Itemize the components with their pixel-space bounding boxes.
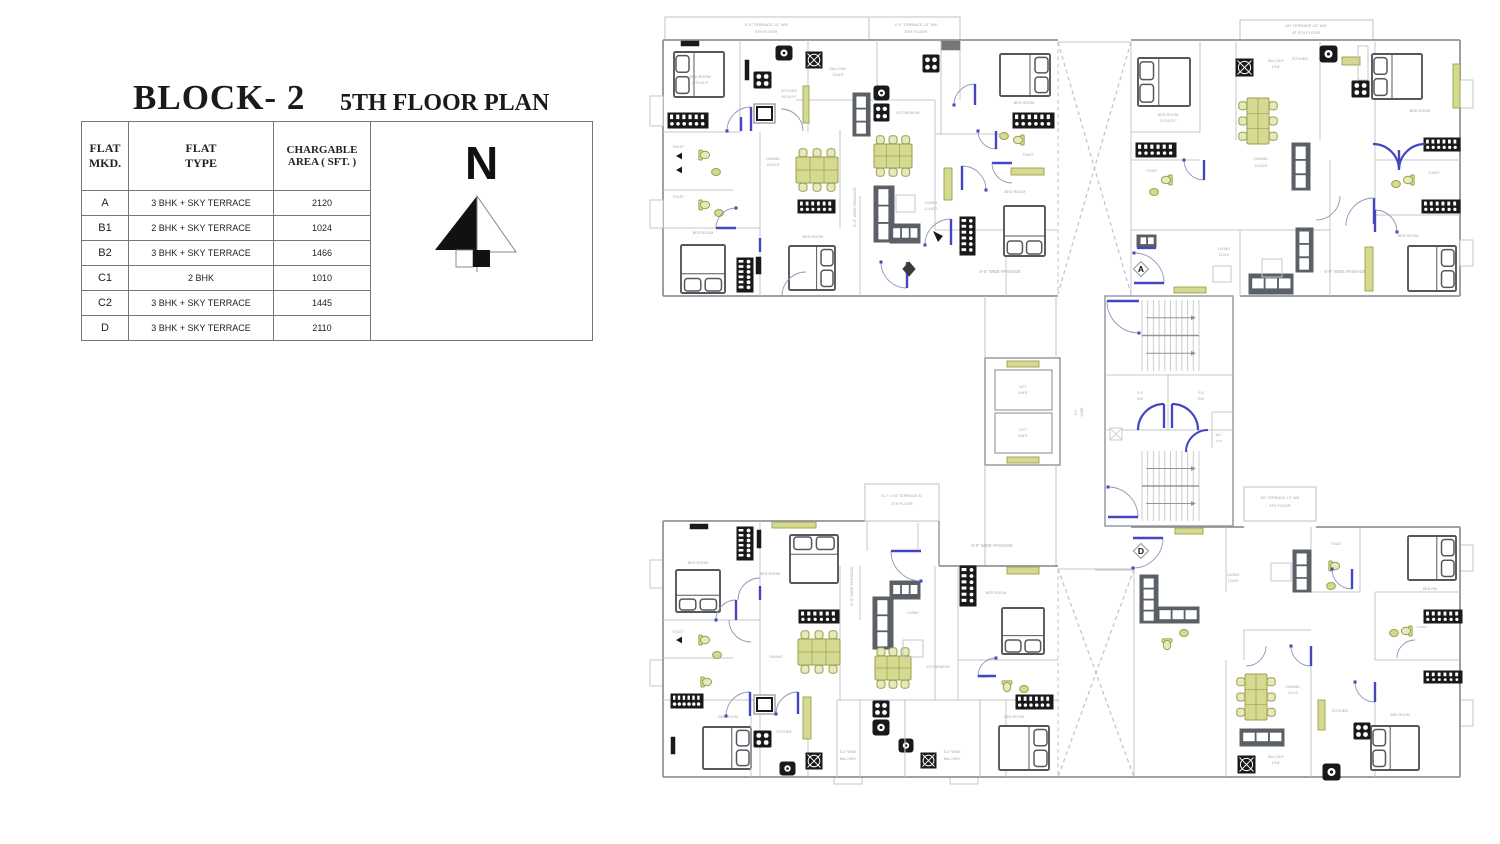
svg-text:KITCHEN: KITCHEN (1332, 709, 1348, 713)
svg-text:S.S: S.S (1137, 391, 1143, 395)
svg-text:DINING: DINING (766, 157, 779, 161)
svg-text:LIVING: LIVING (925, 201, 937, 205)
svg-text:6'x6'6": 6'x6'6" (1018, 434, 1027, 438)
svg-text:12'x19': 12'x19' (1219, 253, 1230, 257)
svg-text:MY TERRACE 13'' WD: MY TERRACE 13'' WD (1261, 496, 1300, 500)
svg-text:TOILET: TOILET (1022, 153, 1033, 157)
svg-text:BED ROOM: BED ROOM (688, 561, 709, 565)
svg-text:TOILET: TOILET (1330, 542, 1341, 546)
svg-text:TOILET: TOILET (672, 145, 684, 149)
svg-text:10'x12'6": 10'x12'6" (766, 163, 780, 167)
svg-text:13'x4': 13'x4' (1272, 761, 1281, 765)
svg-text:5TH FLOOR: 5TH FLOOR (891, 502, 913, 506)
svg-text:5'-0" WIDE PASSAGE: 5'-0" WIDE PASSAGE (971, 543, 1013, 548)
svg-text:BALCONY: BALCONY (944, 757, 961, 761)
svg-text:BALCONY: BALCONY (1268, 755, 1285, 759)
svg-text:LIVING: LIVING (1218, 247, 1230, 251)
svg-text:KITCHEN/DIN: KITCHEN/DIN (927, 665, 950, 669)
svg-text:4'x5': 4'x5' (1216, 439, 1222, 443)
svg-text:LIFT: LIFT (1019, 428, 1027, 432)
svg-text:5TH FLOOR: 5TH FLOOR (905, 29, 928, 34)
svg-text:DINING: DINING (769, 655, 782, 659)
svg-text:TOILET: TOILET (672, 630, 683, 634)
svg-text:5TH FLOOR: 5TH FLOOR (1269, 504, 1291, 508)
svg-text:BED ROOM: BED ROOM (1158, 113, 1179, 117)
svg-text:BED ROOM: BED ROOM (1014, 101, 1035, 105)
svg-text:BALCONY: BALCONY (840, 757, 857, 761)
svg-text:LIFT: LIFT (1019, 385, 1027, 389)
svg-text:W.C.: W.C. (1215, 433, 1222, 437)
svg-text:KITCHEN: KITCHEN (777, 730, 792, 734)
svg-text:5'x8': 5'x8' (1137, 397, 1144, 401)
svg-text:BALCONY: BALCONY (1268, 59, 1285, 63)
svg-text:5'-0" WIDE PASSAGE: 5'-0" WIDE PASSAGE (1324, 269, 1366, 274)
svg-text:WIDE: WIDE (1080, 407, 1084, 417)
svg-text:BED ROOM: BED ROOM (1005, 190, 1026, 194)
svg-text:4'-0" TERRACE 13'' WD: 4'-0" TERRACE 13'' WD (745, 22, 788, 27)
svg-text:10'0"x11'6": 10'0"x11'6" (691, 81, 709, 85)
svg-text:BED ROOM: BED ROOM (693, 231, 714, 235)
svg-text:TOILET: TOILET (1146, 169, 1157, 173)
svg-text:BED ROOM: BED ROOM (760, 572, 781, 576)
svg-text:5'-0" WIDE PASSAGE: 5'-0" WIDE PASSAGE (979, 269, 1021, 274)
svg-text:BED ROOM: BED ROOM (1398, 234, 1419, 238)
svg-text:8'0"x10'0": 8'0"x10'0" (782, 95, 798, 99)
svg-text:5'-0" WIDE PASSAGE: 5'-0" WIDE PASSAGE (849, 566, 854, 606)
svg-text:5'-0" WIDE PASSAGE: 5'-0" WIDE PASSAGE (852, 187, 857, 227)
svg-text:S.S: S.S (1198, 391, 1204, 395)
svg-text:BED ROOM: BED ROOM (689, 74, 711, 79)
svg-text:5'-0" WIDE: 5'-0" WIDE (840, 750, 857, 754)
svg-text:BED ROOM: BED ROOM (803, 235, 824, 239)
svg-text:TOILET: TOILET (1417, 625, 1428, 629)
svg-text:LIVING: LIVING (1227, 573, 1239, 577)
svg-text:TOILET: TOILET (672, 195, 684, 199)
svg-text:5'x8': 5'x8' (1198, 397, 1205, 401)
svg-text:11'x13'6": 11'x13'6" (1254, 164, 1268, 168)
svg-text:DINING: DINING (1286, 685, 1299, 689)
svg-text:BALCONY: BALCONY (829, 67, 847, 71)
svg-text:D: D (1138, 546, 1144, 556)
svg-text:4'-0" TERRACE 13'' WD: 4'-0" TERRACE 13'' WD (895, 22, 938, 27)
svg-text:LIVING: LIVING (907, 611, 919, 615)
svg-text:KITCHEN/DIN: KITCHEN/DIN (897, 111, 920, 115)
svg-text:BED ROOM: BED ROOM (1390, 713, 1410, 717)
svg-text:TOILET: TOILET (1428, 171, 1439, 175)
svg-text:6'-7" x 34' TERRACE AT: 6'-7" x 34' TERRACE AT (881, 494, 923, 498)
svg-text:11'x13': 11'x13' (1288, 691, 1299, 695)
svg-text:BED RM: BED RM (1423, 587, 1437, 591)
svg-text:BED ROOM: BED ROOM (1410, 109, 1431, 113)
svg-text:BED ROOM: BED ROOM (1004, 715, 1024, 719)
svg-text:12'x19': 12'x19' (1228, 579, 1239, 583)
svg-text:6'x6'6": 6'x6'6" (1018, 391, 1027, 395)
svg-text:5'-0": 5'-0" (1074, 408, 1078, 416)
svg-text:DINING: DINING (1254, 157, 1267, 161)
svg-text:5'-0" WIDE: 5'-0" WIDE (944, 750, 961, 754)
svg-text:MY TERRACE 13'' WD: MY TERRACE 13'' WD (1286, 23, 1327, 28)
svg-text:AT 5TH FLOOR: AT 5TH FLOOR (1292, 30, 1320, 35)
svg-text:11'0"x12'0": 11'0"x12'0" (1160, 119, 1177, 123)
svg-text:5TH FLOOR: 5TH FLOOR (755, 29, 778, 34)
svg-text:BED ROOM: BED ROOM (718, 715, 738, 719)
svg-text:13'x4': 13'x4' (1272, 65, 1281, 69)
svg-text:KITCHEN: KITCHEN (781, 89, 797, 93)
svg-text:13'x4'6": 13'x4'6" (832, 73, 845, 77)
svg-text:A: A (1138, 264, 1144, 274)
svg-text:KITCHEN: KITCHEN (1292, 57, 1308, 61)
svg-text:11'x19'0": 11'x19'0" (924, 207, 938, 211)
svg-text:BED ROOM: BED ROOM (986, 591, 1007, 595)
